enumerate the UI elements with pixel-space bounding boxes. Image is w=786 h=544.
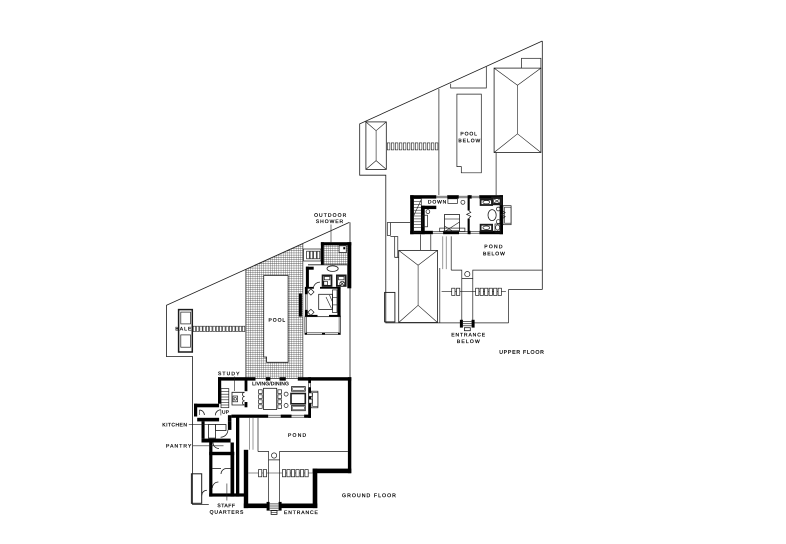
svg-text:POND: POND — [288, 433, 307, 439]
svg-text:SHOWER: SHOWER — [316, 219, 344, 225]
svg-text:STAFF: STAFF — [217, 503, 235, 509]
svg-text:POND: POND — [484, 244, 503, 250]
svg-text:UP: UP — [222, 410, 229, 416]
svg-text:BELOW: BELOW — [457, 339, 481, 345]
svg-text:ENTRANCE: ENTRANCE — [451, 332, 486, 338]
svg-text:POOL: POOL — [269, 318, 287, 324]
svg-text:POOL: POOL — [460, 131, 478, 137]
svg-text:PANTRY: PANTRY — [166, 444, 192, 450]
svg-text:UPPER FLOOR: UPPER FLOOR — [499, 350, 544, 356]
svg-text:DOWN: DOWN — [428, 200, 447, 206]
svg-text:KITCHEN: KITCHEN — [162, 422, 187, 428]
svg-text:BALE: BALE — [175, 326, 192, 332]
svg-text:BELOW: BELOW — [458, 138, 481, 144]
svg-text:ENTRANCE: ENTRANCE — [284, 510, 319, 516]
svg-text:LIVING/DINING: LIVING/DINING — [252, 381, 289, 387]
svg-text:GROUND FLOOR: GROUND FLOOR — [342, 493, 397, 499]
svg-text:OUTDOOR: OUTDOOR — [314, 213, 347, 219]
svg-text:STUDY: STUDY — [218, 371, 241, 377]
svg-text:BELOW: BELOW — [483, 251, 506, 257]
svg-text:QUARTERS: QUARTERS — [210, 510, 245, 516]
